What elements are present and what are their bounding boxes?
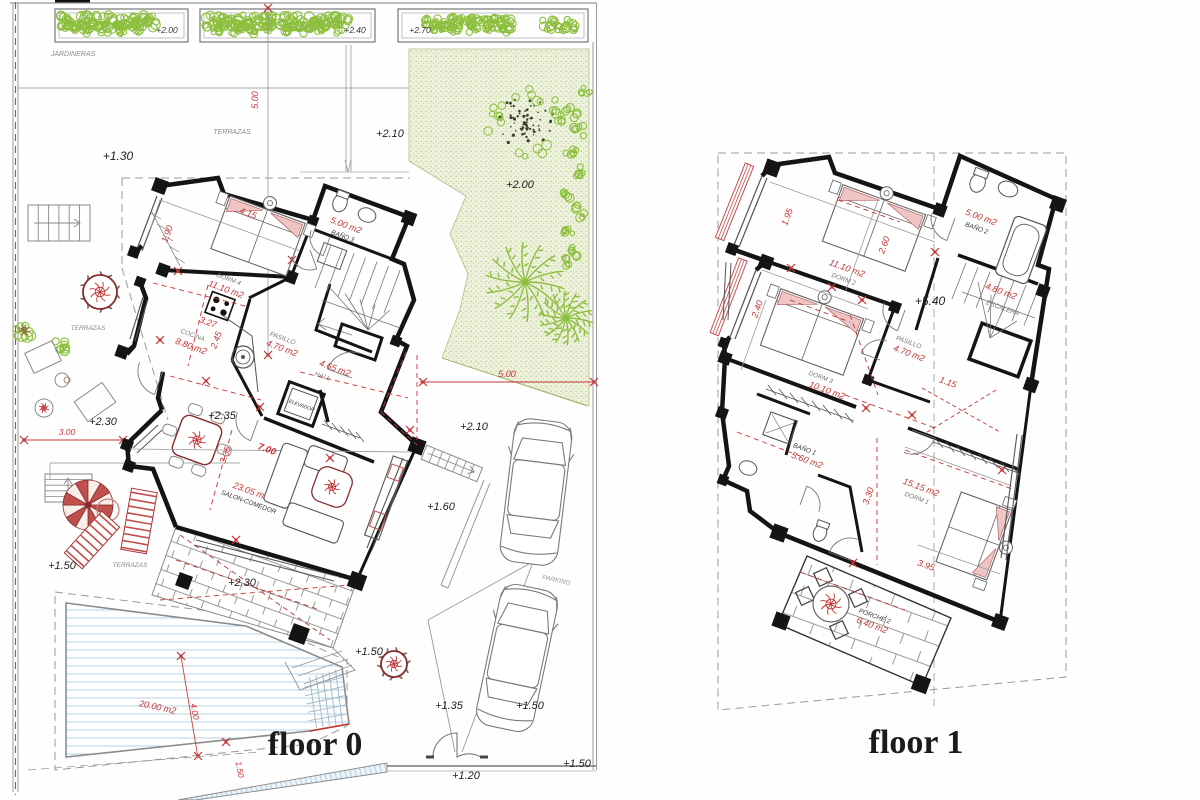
svg-text:+1.50: +1.50 <box>563 758 592 770</box>
svg-text:TERRAZAS: TERRAZAS <box>113 562 148 569</box>
svg-text:+2.30: +2.30 <box>89 416 118 428</box>
svg-text:+2.00: +2.00 <box>156 25 178 35</box>
svg-text:+2.00: +2.00 <box>506 179 535 191</box>
svg-text:3.00: 3.00 <box>59 427 76 437</box>
svg-text:TERRAZAS: TERRAZAS <box>213 129 251 136</box>
svg-text:+2.40: +2.40 <box>344 25 366 35</box>
svg-text:+5.40: +5.40 <box>915 294 946 308</box>
svg-text:+1.50: +1.50 <box>516 700 545 712</box>
svg-text:+2.30: +2.30 <box>228 577 257 589</box>
svg-text:+2.35: +2.35 <box>208 410 237 422</box>
svg-text:floor 1: floor 1 <box>869 724 964 761</box>
svg-text:+1.50: +1.50 <box>48 560 77 572</box>
svg-text:floor 0: floor 0 <box>268 726 363 763</box>
svg-text:+1.20: +1.20 <box>452 770 481 782</box>
svg-text:+1.35: +1.35 <box>435 700 464 712</box>
svg-text:+1.60: +1.60 <box>427 501 456 513</box>
svg-text:+1.50: +1.50 <box>355 646 384 658</box>
svg-text:5.00: 5.00 <box>498 369 516 379</box>
svg-text:5.00: 5.00 <box>250 91 260 109</box>
svg-text:+2.10: +2.10 <box>460 421 489 433</box>
svg-text:TERRAZAS: TERRAZAS <box>71 325 106 332</box>
svg-text:+2.70: +2.70 <box>409 25 431 35</box>
svg-text:+1.30: +1.30 <box>103 149 134 163</box>
svg-text:+2.10: +2.10 <box>376 128 405 140</box>
svg-text:JARDINERAS: JARDINERAS <box>50 51 96 58</box>
